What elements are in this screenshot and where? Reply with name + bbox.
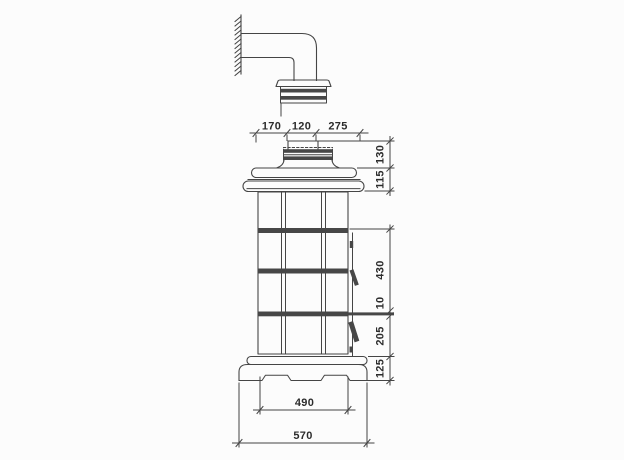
dim-label-115: 115 [375, 170, 387, 189]
technical-drawing-page: 170 120 275 [0, 0, 624, 460]
dim-label-120: 120 [292, 121, 311, 133]
dim-label-130: 130 [375, 145, 387, 164]
dim-label-275: 275 [328, 121, 347, 133]
dim-label-490: 490 [295, 397, 314, 409]
door-hinge-upper [350, 241, 353, 248]
door-hinge-lower [350, 347, 353, 353]
dim-label-205: 205 [375, 326, 387, 345]
dim-label-170: 170 [262, 121, 281, 133]
stove-elevation-drawing: 170 120 275 [0, 0, 624, 460]
dim-label-570: 570 [293, 430, 312, 442]
dim-label-125: 125 [375, 359, 387, 378]
dim-label-10: 10 [375, 297, 387, 310]
dim-label-430: 430 [375, 260, 387, 279]
